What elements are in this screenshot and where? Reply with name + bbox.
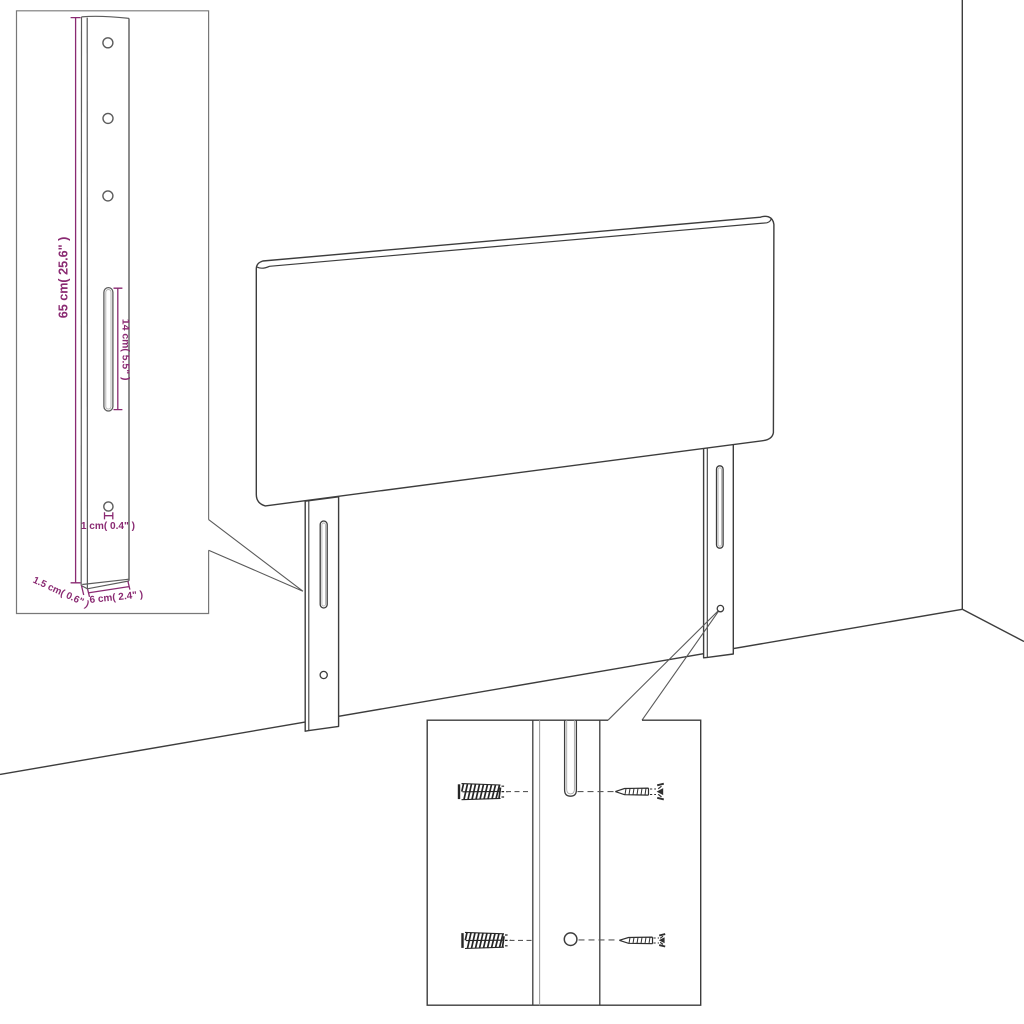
svg-text:1 cm( 0.4" ): 1 cm( 0.4" ) [81, 521, 135, 532]
svg-text:14 cm( 5.5" ): 14 cm( 5.5" ) [119, 319, 130, 381]
svg-text:65 cm( 25.6" ): 65 cm( 25.6" ) [57, 237, 71, 319]
